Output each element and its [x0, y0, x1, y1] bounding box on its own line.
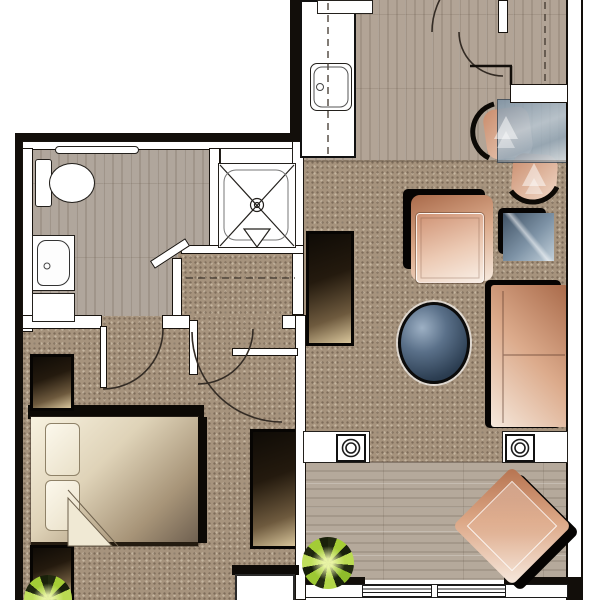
nightstand-top [30, 354, 74, 411]
round-planter-left [336, 434, 366, 462]
pillow [45, 480, 80, 531]
window-sill [303, 584, 568, 598]
bed-shadow [198, 417, 207, 543]
shower-shelf [220, 148, 293, 164]
bedroom-door-leaf-open [232, 348, 298, 356]
wardrobe [250, 429, 300, 549]
wall-kitchen-left [290, 0, 300, 141]
shower-stall [218, 163, 296, 248]
entry-door-jamb [498, 0, 508, 33]
side-table [503, 213, 554, 261]
wall-bedroom-door-stub [189, 320, 198, 375]
dining-table [497, 99, 568, 163]
range [317, 0, 373, 14]
wall-exterior-top [15, 133, 300, 141]
ottoman [416, 213, 484, 283]
toilet-bowl [49, 163, 95, 203]
bathroom-door-leaf [100, 326, 107, 388]
kitchen-sink [310, 63, 352, 111]
vanity-cabinet [32, 293, 75, 322]
vanity-sink-basin [37, 240, 70, 286]
chest [235, 574, 295, 600]
wall-bedroom-top-b [162, 315, 190, 329]
pass-through-ledge [510, 84, 568, 103]
tv-console [306, 231, 354, 346]
wall-exterior-right [566, 0, 583, 600]
coffee-table [398, 302, 470, 384]
wall-bottom-right-corner [566, 577, 583, 600]
round-planter-right [505, 434, 535, 462]
wall-hall-left [172, 258, 182, 322]
pillow [45, 423, 80, 476]
towel-bar [55, 146, 139, 154]
plant-sunroom [302, 537, 354, 589]
floor-plan [0, 0, 600, 600]
sofa [491, 285, 568, 427]
